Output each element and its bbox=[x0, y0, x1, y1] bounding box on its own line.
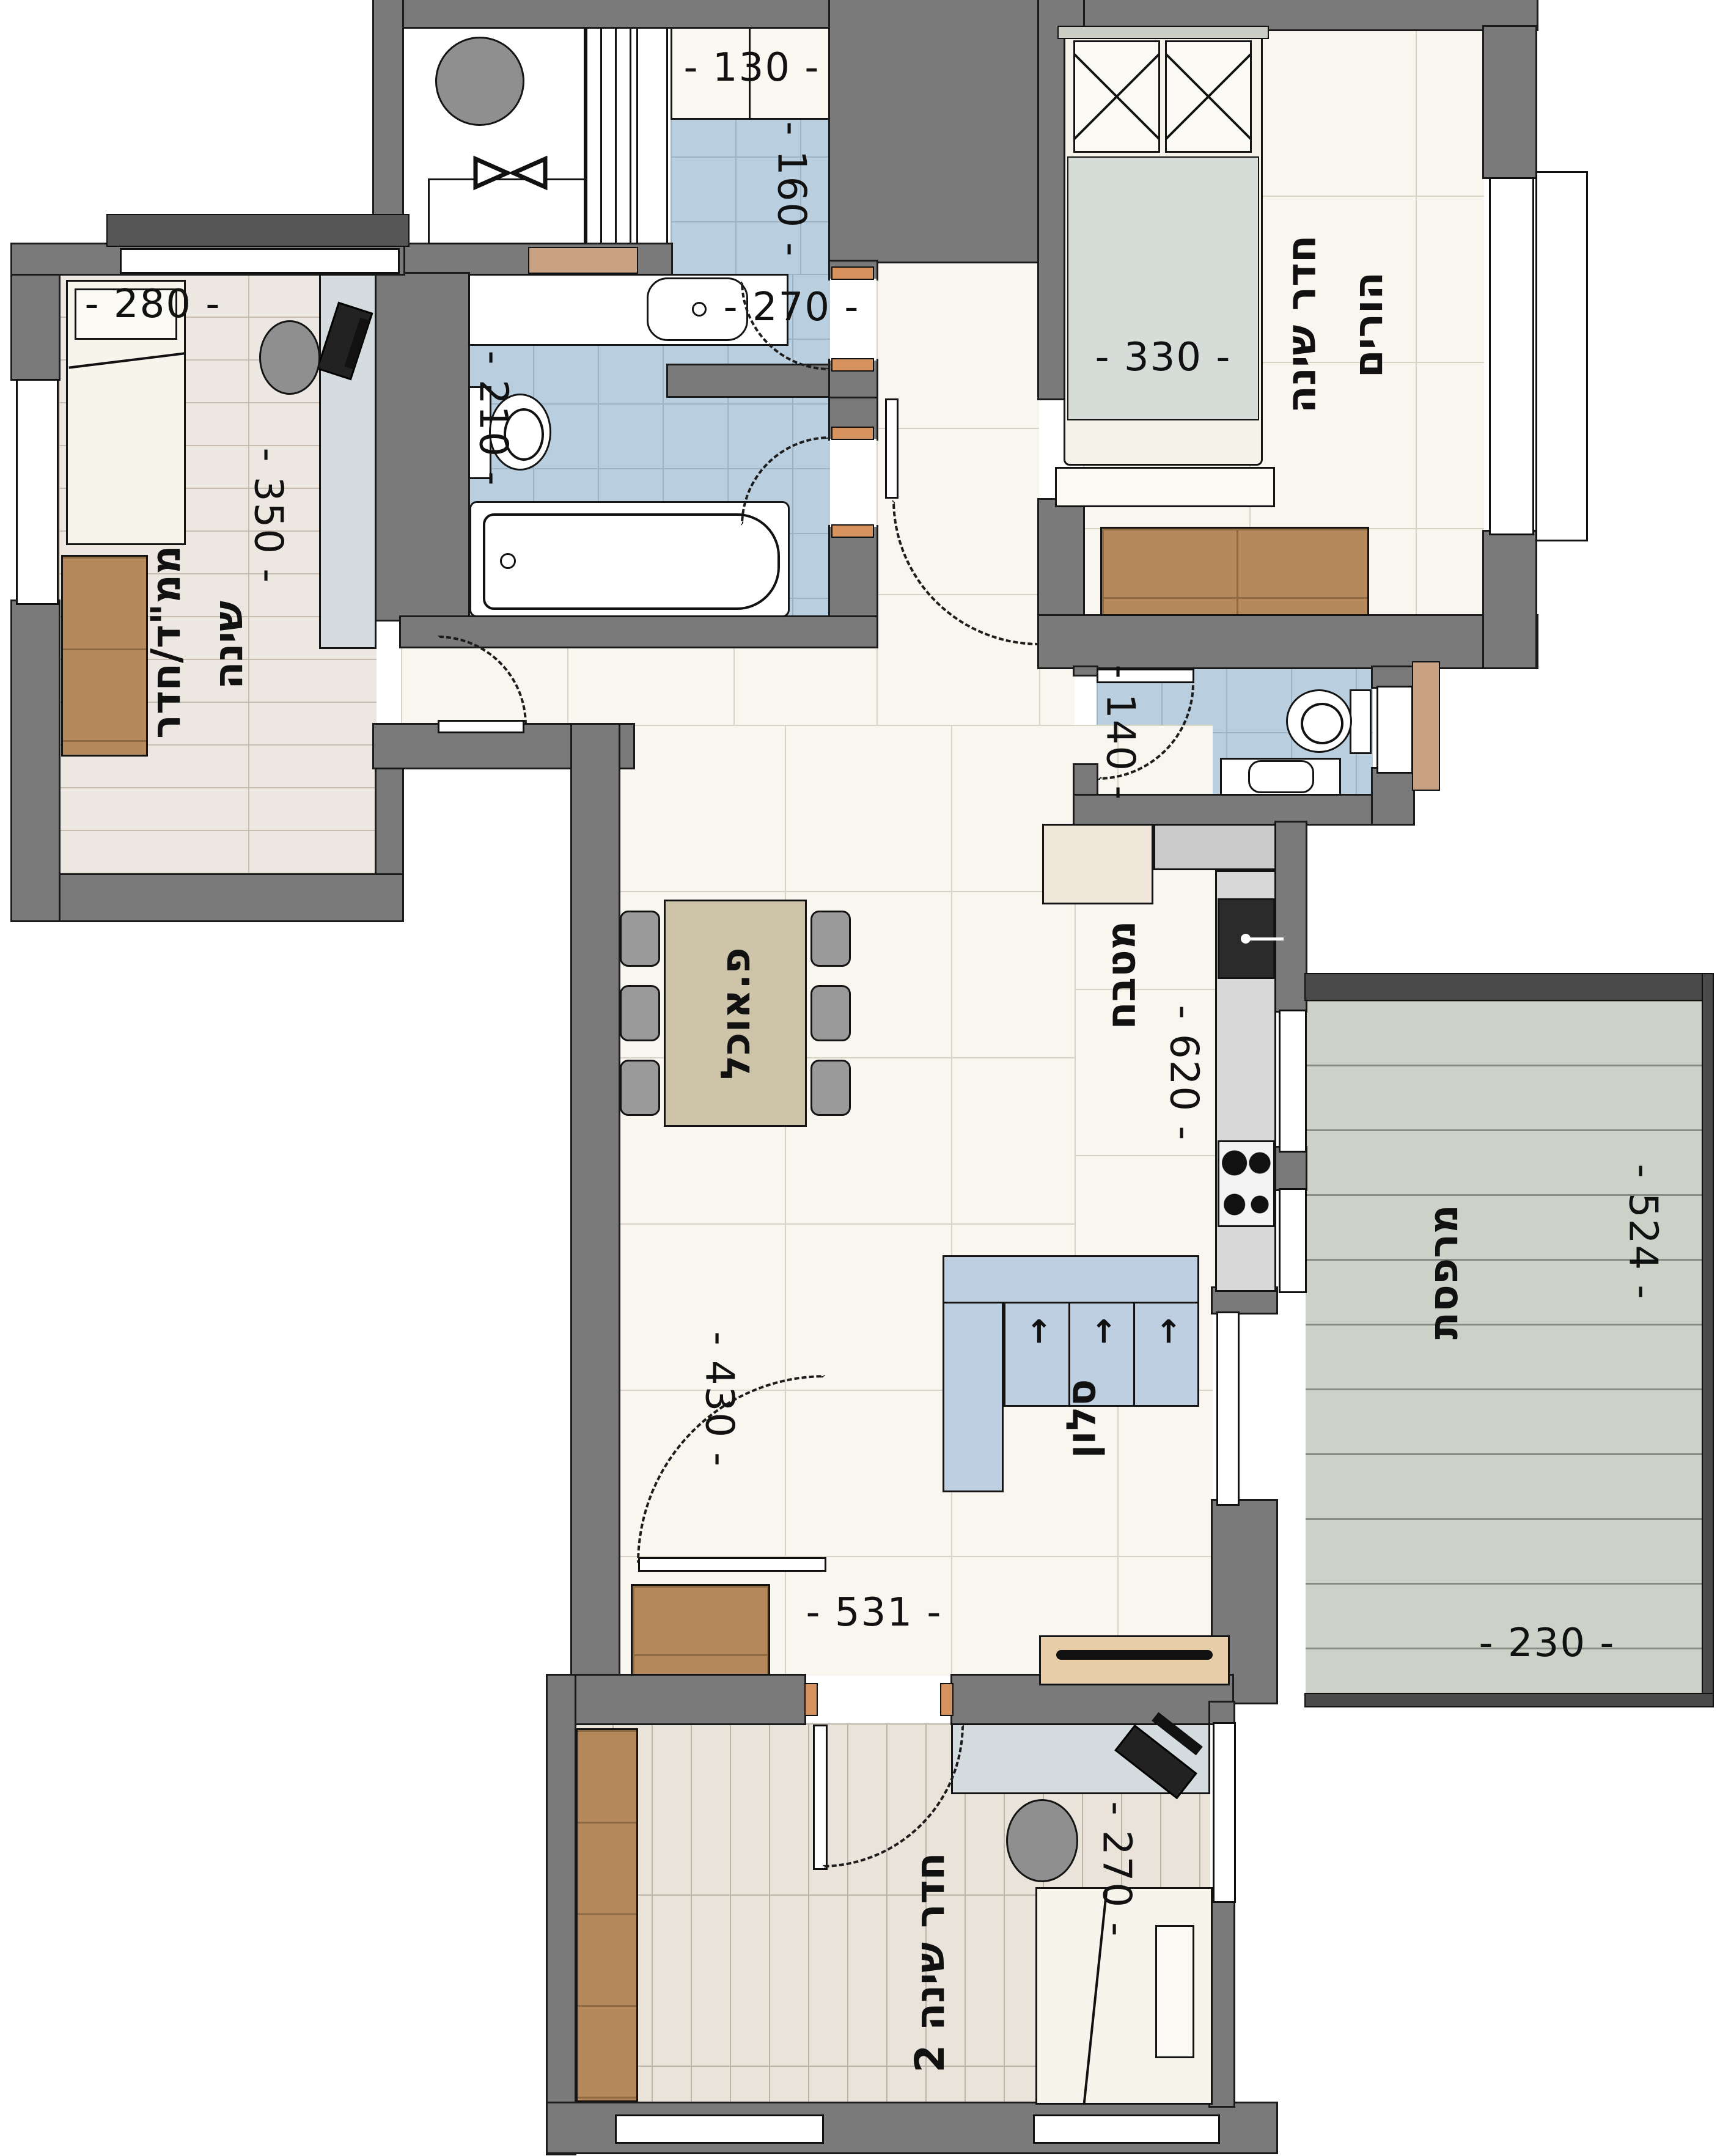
wall-shaft bbox=[377, 274, 468, 620]
tv-console-icon bbox=[1039, 1635, 1230, 1685]
service-door-threshold bbox=[529, 248, 637, 273]
dim-kitchen-depth: - 620 - bbox=[1163, 994, 1205, 1153]
cooktop-icon bbox=[1218, 1140, 1275, 1227]
wall-mamad-left-b bbox=[12, 601, 59, 920]
chair-icon bbox=[620, 985, 660, 1041]
hall-floor bbox=[877, 262, 1039, 726]
mamad-label-line1: ממ"ד/חדר bbox=[139, 501, 192, 782]
bedroom2-window-bottom-b bbox=[1033, 2114, 1220, 2144]
wc-sink-icon bbox=[1248, 760, 1314, 793]
bathtub-drain bbox=[500, 553, 516, 569]
pillow-icon bbox=[1165, 40, 1252, 153]
wall-wc-left-b bbox=[1075, 765, 1097, 798]
living-label: סלון bbox=[1056, 1360, 1106, 1476]
kitchen-label: מטבח bbox=[1097, 898, 1145, 1051]
dining-label: פ.אוכל bbox=[712, 947, 759, 1080]
dim-bath-depth: - 210 - bbox=[472, 342, 515, 495]
balcony-rail-right bbox=[1703, 974, 1713, 1706]
mamad-window-left bbox=[16, 379, 59, 605]
bath-doorway bbox=[830, 439, 877, 527]
balcony-deck bbox=[1306, 1000, 1703, 1694]
wall-bedroom2-top-a bbox=[572, 1676, 804, 1723]
wc-toilet-bowl-inner bbox=[1301, 703, 1343, 744]
bedroom2-pillow bbox=[1155, 1925, 1194, 2058]
wc-toilet-tank bbox=[1350, 689, 1372, 754]
sofa-seat-divider bbox=[1133, 1303, 1135, 1406]
chair-icon bbox=[620, 911, 660, 967]
parents-room-label-line2: הורים bbox=[1342, 242, 1395, 407]
wall-parents-left-lower bbox=[1039, 500, 1083, 617]
wall-kitchen-right-a bbox=[1276, 823, 1306, 1011]
parents-dresser bbox=[1100, 527, 1369, 616]
parents-room-label-line1: חדר שינה bbox=[1275, 196, 1328, 452]
refrigerator bbox=[1042, 824, 1153, 904]
dim-balcony-depth: - 524 - bbox=[1620, 1146, 1666, 1318]
tv-icon bbox=[1056, 1650, 1213, 1660]
sink-drain bbox=[692, 302, 707, 317]
wall-shower-bottom bbox=[668, 365, 830, 396]
wall-bedroom2-right-b bbox=[1210, 1898, 1233, 2106]
parents-window bbox=[1489, 177, 1534, 535]
bedroom2-office-chair bbox=[1006, 1799, 1078, 1882]
mamad-window-top bbox=[120, 248, 400, 274]
laundry-louver-screen bbox=[586, 27, 638, 244]
wall-parents-right-lower bbox=[1484, 532, 1535, 667]
kitchen-window-b bbox=[1279, 1188, 1307, 1293]
wall-mamad-bottom bbox=[12, 875, 402, 920]
wall-living-right-a bbox=[1213, 1288, 1276, 1313]
dim-bath-width: - 270 - bbox=[727, 280, 856, 335]
bedroom2-window-bottom-a bbox=[615, 2114, 824, 2144]
sofa-arrow: ↑ bbox=[1026, 1314, 1053, 1351]
parents-window-sill bbox=[1535, 171, 1588, 541]
wc-window bbox=[1376, 686, 1413, 774]
balcony-rail-top bbox=[1306, 974, 1713, 1000]
floor-plan: פ.אוכל ↑ ↑ ↑ - 130 - - 160 - - 270 - bbox=[0, 0, 1731, 2156]
door-jamb bbox=[832, 428, 873, 439]
kitchen-window-a bbox=[1279, 1010, 1307, 1153]
louver-door-strip bbox=[638, 27, 666, 244]
bowtie-valve-icon bbox=[471, 154, 550, 192]
wardrobe-icon bbox=[61, 555, 148, 757]
wall-wc-right-b bbox=[1373, 769, 1413, 824]
chair-icon bbox=[810, 1060, 851, 1116]
dim-bedroom2-depth: - 270 - bbox=[1095, 1799, 1138, 1940]
wall-wc-right-a bbox=[1373, 667, 1413, 687]
kitchen-faucet-arm bbox=[1249, 937, 1284, 941]
dim-living-width: - 531 - bbox=[788, 1586, 960, 1639]
wall-bedroom2-right-a bbox=[1210, 1703, 1233, 1723]
wall-wc-left-a bbox=[1075, 667, 1097, 675]
mamad-shutter-box bbox=[108, 215, 408, 246]
dim-shower-width: - 130 - bbox=[691, 40, 813, 95]
dim-shower-depth: - 160 - bbox=[769, 116, 814, 263]
bed-headboard bbox=[1059, 27, 1268, 38]
dim-parents-width: - 330 - bbox=[1082, 330, 1244, 385]
dim-dining-depth: - 430 - bbox=[698, 1308, 741, 1491]
balcony-label: מרפסת bbox=[1417, 1189, 1469, 1354]
dim-wc-width: - 140 - bbox=[1099, 670, 1142, 796]
bedroom2-label: חדר שינה 2 bbox=[902, 1819, 957, 2106]
chair-icon bbox=[810, 985, 851, 1041]
wall-kitchen-right-b bbox=[1276, 1148, 1306, 1189]
dim-balcony-width: - 230 - bbox=[1465, 1617, 1630, 1670]
dining-table-icon: פ.אוכל bbox=[664, 900, 807, 1127]
wall-parents-right-upper bbox=[1484, 27, 1535, 177]
wall-parents-bottom bbox=[1039, 616, 1537, 667]
wc-shutter-box bbox=[1413, 662, 1439, 790]
bed-foot-bench bbox=[1055, 467, 1275, 507]
chair-icon bbox=[620, 1060, 660, 1116]
wall-bedroom2-left bbox=[548, 1676, 575, 2154]
dim-mamad-width: - 280 - bbox=[92, 279, 214, 330]
sofa-arrow: ↑ bbox=[1155, 1314, 1182, 1351]
wall-entry-mass bbox=[830, 0, 1042, 262]
wall-bath-right-b bbox=[830, 527, 877, 620]
office-chair-icon bbox=[259, 320, 320, 395]
sofa-chaise bbox=[943, 1302, 1004, 1492]
balcony-rail-bottom bbox=[1306, 1694, 1713, 1706]
parents-door-leaf bbox=[885, 398, 899, 499]
balcony-sliding-door bbox=[1216, 1311, 1240, 1506]
door-jamb bbox=[832, 268, 873, 279]
door-jamb bbox=[941, 1684, 952, 1715]
sofa-arrow: ↑ bbox=[1090, 1314, 1117, 1351]
chair-icon bbox=[810, 911, 851, 967]
door-jamb bbox=[806, 1684, 817, 1715]
wall-dining-left bbox=[572, 725, 619, 1676]
door-jamb bbox=[832, 359, 873, 370]
sofa-icon bbox=[943, 1255, 1199, 1304]
bedroom2-window-right bbox=[1213, 1722, 1236, 1903]
boiler-icon bbox=[435, 37, 524, 126]
mamad-label-line2: שינה bbox=[202, 568, 254, 721]
entry-cabinet bbox=[631, 1584, 770, 1676]
pillow-icon bbox=[1073, 40, 1160, 153]
door-jamb bbox=[832, 526, 873, 537]
bedroom2-wardrobe bbox=[576, 1728, 638, 2102]
kitchen-counter-top bbox=[1153, 824, 1276, 870]
dim-mamad-depth: - 350 - bbox=[247, 442, 290, 589]
bathtub-inner bbox=[483, 513, 780, 610]
